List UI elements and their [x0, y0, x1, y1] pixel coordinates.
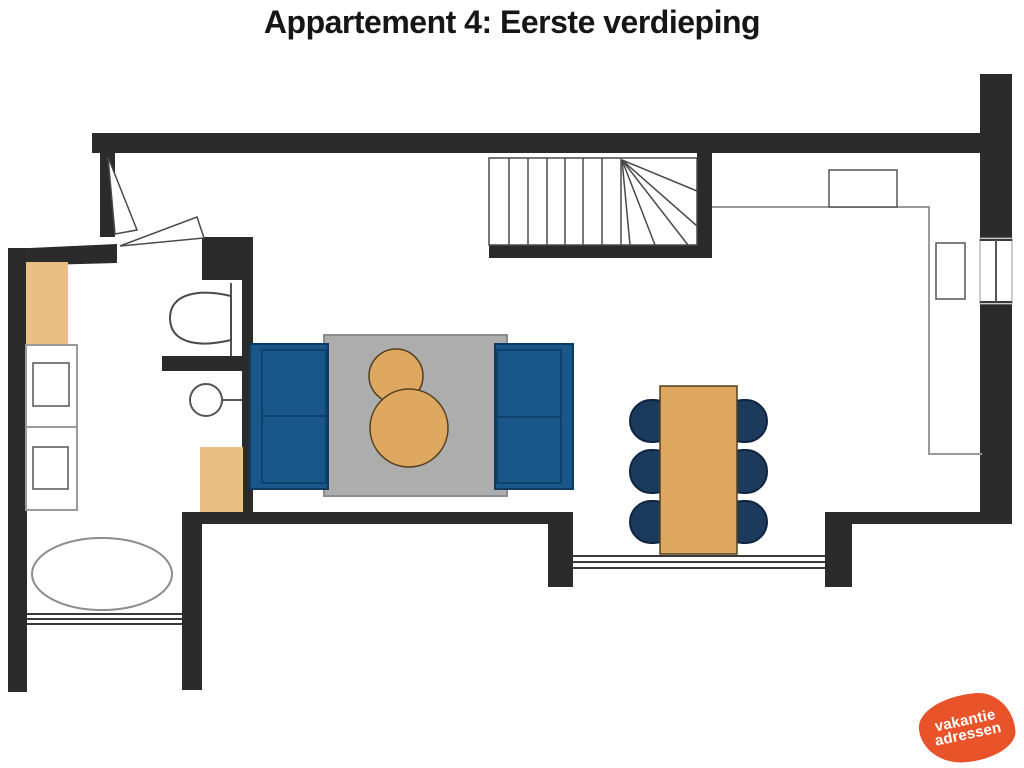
window-right-wall: [980, 238, 1012, 304]
wall-stair-right: [697, 153, 712, 258]
wall-toilet-block: [202, 237, 253, 280]
wall-right-lower: [980, 304, 1012, 524]
sofa-right: [495, 344, 573, 489]
washbasin-bowl: [190, 384, 222, 416]
toilet: [170, 283, 231, 356]
wall-stair-bottom: [489, 245, 712, 258]
dining-area: [630, 386, 767, 554]
wall-top: [92, 133, 1012, 153]
washbasin: [190, 384, 242, 416]
kitchen-cooktop: [829, 170, 897, 207]
floor-plan: [0, 0, 1024, 768]
wall-living-bottom: [182, 512, 573, 524]
wall-left: [8, 248, 27, 692]
staircase: [489, 158, 697, 245]
window-dining-bottom: [572, 556, 825, 568]
wall-dining-stub-right: [825, 512, 852, 587]
wall-dining-bottom: [852, 512, 1012, 524]
dryer: [33, 447, 68, 489]
dining-table: [660, 386, 737, 554]
sofa-left: [250, 344, 328, 489]
entry-doors: [108, 157, 204, 246]
living-area: [250, 335, 573, 496]
bathroom: [26, 262, 243, 610]
bathroom-cabinet-top: [26, 262, 68, 345]
wall-toilet-nook-bottom: [162, 356, 243, 371]
wall-right-upper: [980, 74, 1012, 238]
stair-outline: [489, 158, 697, 245]
wall-bath-stub-right: [182, 512, 202, 690]
toilet-bowl: [170, 293, 231, 344]
washer: [33, 363, 69, 406]
vakantieadressen-logo-text: vakantie adressen: [931, 707, 1003, 749]
window-bathroom-bottom: [27, 614, 182, 624]
kitchen-appliance: [936, 243, 965, 299]
oval-bathtub: [32, 538, 172, 610]
wall-dining-stub-left: [548, 512, 573, 587]
round-table-large: [370, 389, 448, 467]
bathroom-cabinet-mid: [200, 447, 243, 512]
